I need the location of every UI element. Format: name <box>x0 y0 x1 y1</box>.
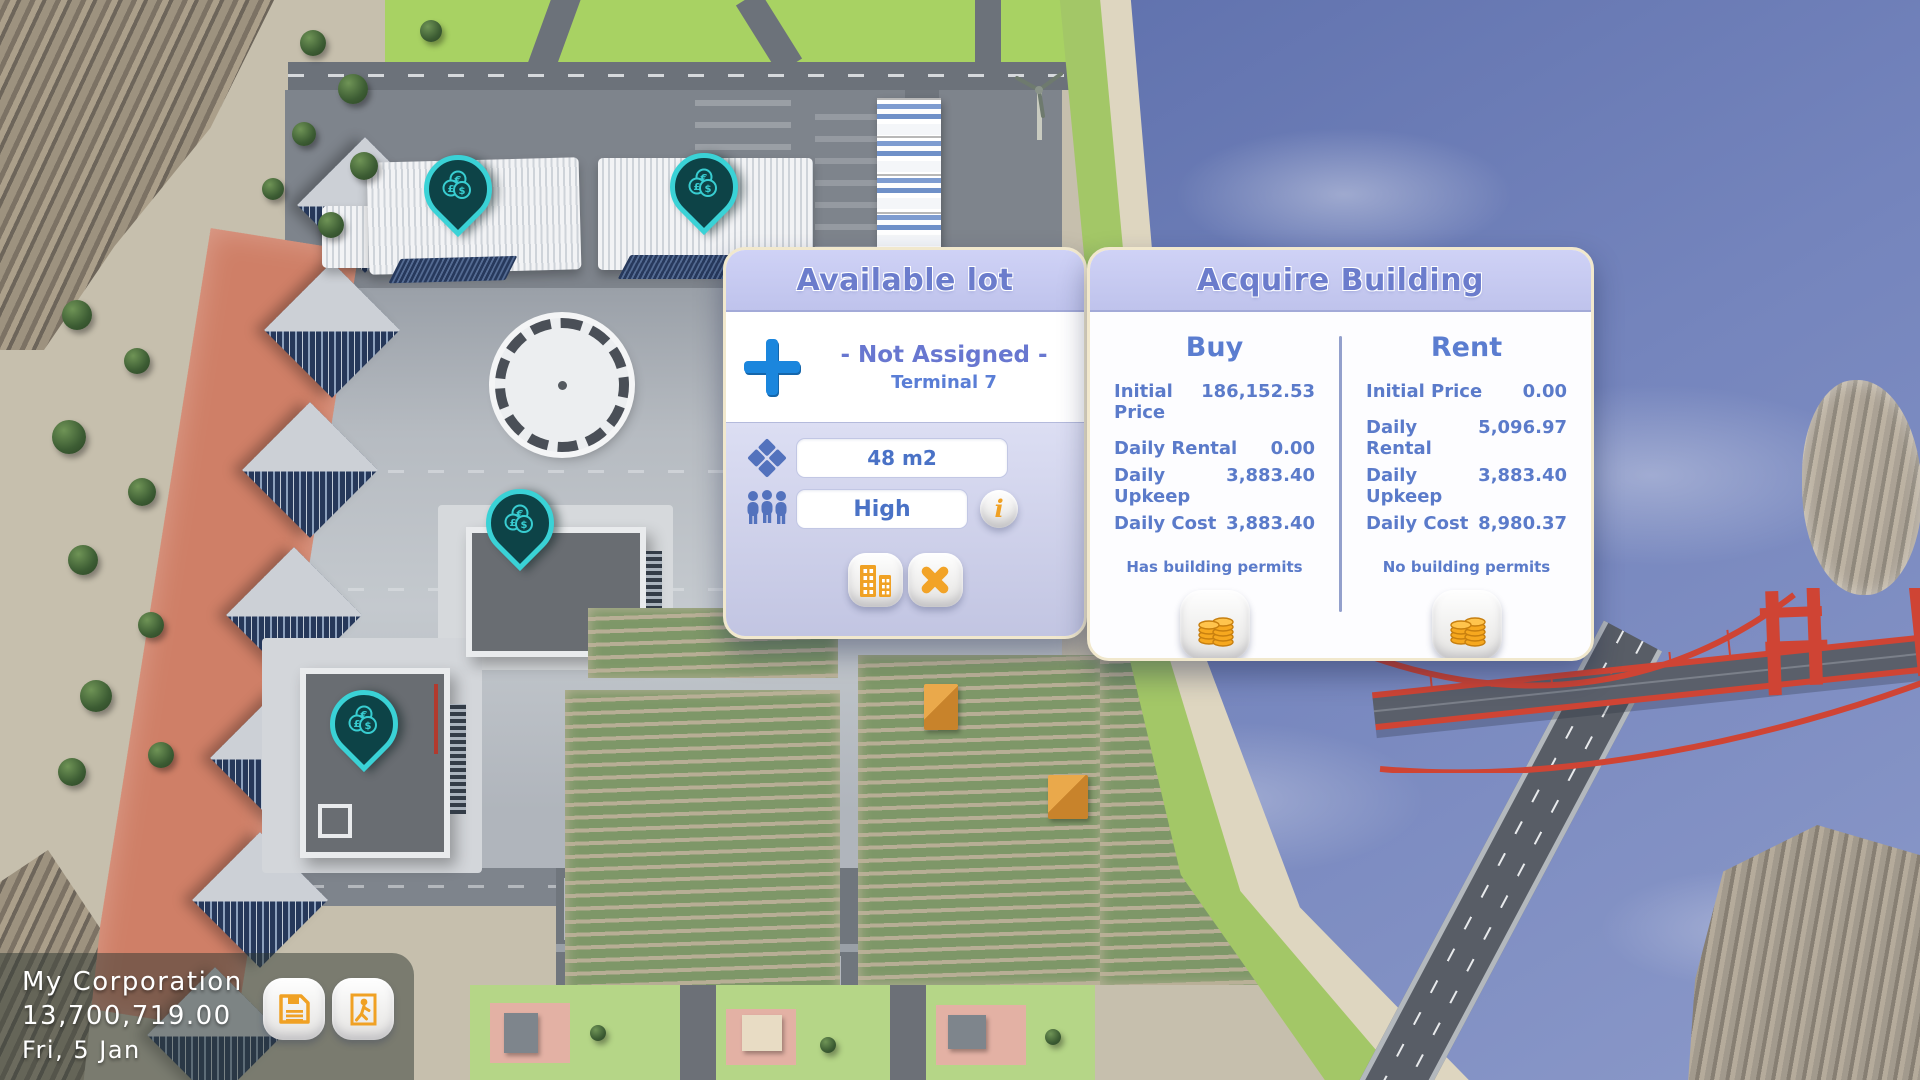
acquire-building-panel: Acquire Building Buy Initial Price 186,1… <box>1087 247 1594 661</box>
tree <box>62 300 92 330</box>
row-value: 3,883.40 <box>1226 465 1315 507</box>
house <box>504 1013 538 1053</box>
svg-text:£: £ <box>510 518 517 529</box>
tree <box>292 122 316 146</box>
wind-turbine <box>1005 52 1075 144</box>
tree <box>318 212 344 238</box>
tree <box>820 1037 836 1053</box>
exit-button[interactable] <box>332 978 394 1040</box>
svg-text:i: i <box>994 495 1003 523</box>
svg-text:£: £ <box>694 182 701 193</box>
rent-column: Rent Initial Price 0.00 Daily Rental 5,0… <box>1342 312 1591 660</box>
tree <box>148 742 174 768</box>
panel-title: Available lot <box>726 250 1084 312</box>
row-label: Daily Cost <box>1366 513 1468 534</box>
price-row: Daily Upkeep 3,883.40 <box>1114 465 1315 507</box>
row-label: Initial Price <box>1114 381 1201 423</box>
price-row: Daily Rental 5,096.97 <box>1366 417 1567 459</box>
crop-field <box>858 655 1103 985</box>
row-label: Daily Rental <box>1366 417 1478 459</box>
terminal-glass-front <box>389 256 518 283</box>
buy-button[interactable] <box>1180 590 1250 660</box>
barn <box>1048 775 1088 819</box>
house <box>948 1015 986 1049</box>
tree <box>590 1025 606 1041</box>
map-pin-available-lot[interactable]: €£$ <box>330 690 398 758</box>
plus-icon <box>740 335 804 399</box>
x-icon <box>915 560 955 600</box>
assign-building-button[interactable] <box>848 553 903 607</box>
round-building <box>495 318 629 452</box>
tree <box>1045 1029 1061 1045</box>
row-label: Daily Upkeep <box>1366 465 1478 507</box>
tree <box>128 478 156 506</box>
residential-block <box>470 985 1095 1080</box>
map-pin-available-lot[interactable]: €£$ <box>486 489 554 557</box>
price-row: Daily Rental 0.00 <box>1114 438 1315 459</box>
svg-text:€: € <box>700 173 708 184</box>
crop-field <box>565 690 840 995</box>
permits-note: No building permits <box>1383 558 1550 576</box>
tree <box>68 545 98 575</box>
row-label: Initial Price <box>1366 381 1482 402</box>
price-row: Initial Price 186,152.53 <box>1114 381 1315 423</box>
info-icon: i <box>987 495 1011 523</box>
panel-footer <box>1090 660 1591 661</box>
road-cut <box>975 0 1001 68</box>
svg-text:$: $ <box>705 184 712 195</box>
area-tiles-icon <box>744 438 790 478</box>
row-value: 0.00 <box>1523 381 1567 402</box>
svg-text:£: £ <box>448 184 455 195</box>
svg-text:€: € <box>516 509 524 520</box>
roof-hatch <box>318 804 352 838</box>
row-value: 3,883.40 <box>1226 513 1315 534</box>
map-pin-available-lot[interactable]: €£$ <box>670 153 738 221</box>
house <box>742 1015 782 1051</box>
row-value: 5,096.97 <box>1478 417 1567 459</box>
tree <box>138 612 164 638</box>
price-row: Daily Cost 8,980.37 <box>1366 513 1567 534</box>
rent-heading: Rent <box>1431 332 1502 363</box>
row-value: 0.00 <box>1271 438 1315 459</box>
row-value: 8,980.37 <box>1478 513 1567 534</box>
lot-size-field[interactable]: 48 m2 <box>796 438 1008 478</box>
round-building-center <box>558 381 567 390</box>
tree <box>124 348 150 374</box>
svg-text:£: £ <box>354 719 361 730</box>
exit-door-icon <box>343 989 383 1029</box>
row-label: Daily Rental <box>1114 438 1237 459</box>
map-pin-available-lot[interactable]: €£$ <box>424 155 492 223</box>
lot-details: 48 m2 High i <box>726 422 1084 636</box>
save-button[interactable] <box>263 978 325 1040</box>
game-viewport: €£$ €£$ €£$ <box>0 0 1920 1080</box>
lot-assignment: - Not Assigned - <box>818 342 1070 368</box>
floppy-disk-icon <box>274 989 314 1029</box>
price-row: Daily Upkeep 3,883.40 <box>1366 465 1567 507</box>
svg-text:$: $ <box>459 186 466 197</box>
tree <box>80 680 112 712</box>
buy-column: Buy Initial Price 186,152.53 Daily Renta… <box>1090 312 1339 660</box>
lot-demand-field[interactable]: High <box>796 489 968 529</box>
row-label: Daily Cost <box>1114 513 1216 534</box>
svg-text:€: € <box>360 710 368 721</box>
coins-icon <box>1192 602 1238 648</box>
panel-title: Acquire Building <box>1090 250 1591 312</box>
tree <box>338 74 368 104</box>
rock-island <box>1802 380 1920 595</box>
lot-summary: - Not Assigned - Terminal 7 <box>726 312 1084 422</box>
barn <box>924 684 958 730</box>
row-value: 186,152.53 <box>1201 381 1315 423</box>
tree <box>420 20 442 42</box>
tree <box>58 758 86 786</box>
price-row: Initial Price 0.00 <box>1366 381 1567 402</box>
available-lot-panel: Available lot - Not Assigned - Terminal … <box>723 247 1087 639</box>
tree <box>350 152 378 180</box>
tree <box>52 420 86 454</box>
tree <box>300 30 326 56</box>
roof-stripe <box>434 684 438 754</box>
row-value: 3,883.40 <box>1478 465 1567 507</box>
buy-heading: Buy <box>1186 332 1243 363</box>
svg-text:$: $ <box>365 721 372 732</box>
cancel-button[interactable] <box>908 553 963 607</box>
rent-button[interactable] <box>1432 590 1502 660</box>
row-label: Daily Upkeep <box>1114 465 1226 507</box>
street <box>680 985 716 1080</box>
people-icon <box>744 489 790 529</box>
svg-text:€: € <box>454 175 462 186</box>
info-button[interactable]: i <box>980 490 1018 528</box>
lot-name: Terminal 7 <box>818 372 1070 393</box>
tree <box>262 178 284 200</box>
permits-note: Has building permits <box>1126 558 1302 576</box>
solar-panel-wall <box>450 704 466 814</box>
svg-text:$: $ <box>521 520 528 531</box>
price-row: Daily Cost 3,883.40 <box>1114 513 1315 534</box>
add-lot-button[interactable] <box>726 335 818 399</box>
street <box>890 985 926 1080</box>
building-icon <box>854 561 896 599</box>
coins-icon <box>1444 602 1490 648</box>
